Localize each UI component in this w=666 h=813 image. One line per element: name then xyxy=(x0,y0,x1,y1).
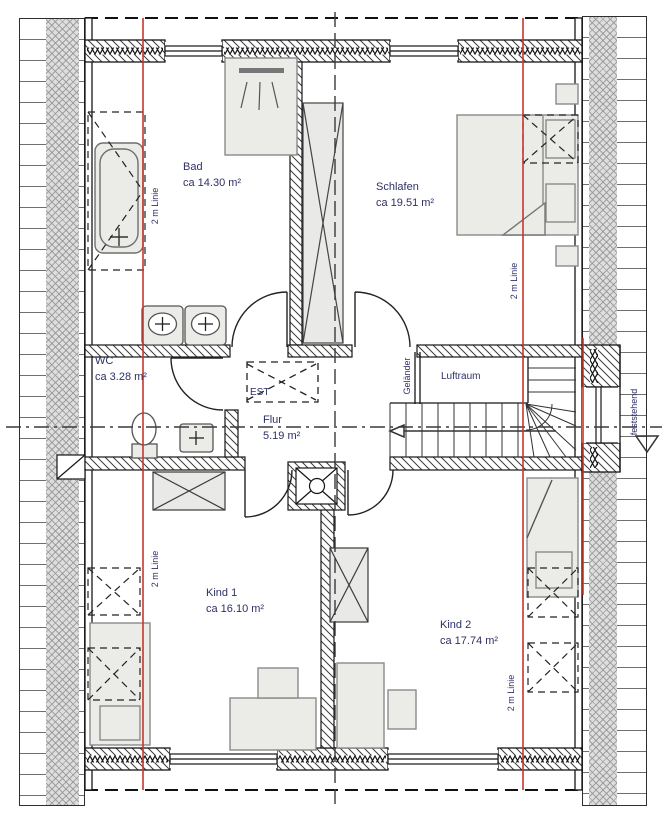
room-area: ca 19.51 m² xyxy=(376,196,434,212)
installation-shaft xyxy=(288,462,345,510)
two-m-line-label-kind1: 2 m Linie xyxy=(150,551,160,588)
window-kind2 xyxy=(388,750,498,768)
washbasin-right xyxy=(185,306,226,345)
window-kind1 xyxy=(170,750,277,768)
room-label-wc: WC ca 3.28 m² xyxy=(95,354,147,386)
bed-kind1 xyxy=(90,623,150,745)
wc-sill xyxy=(57,455,85,479)
two-m-line-label-schlafen: 2 m Linie xyxy=(509,263,519,300)
room-area: ca 14.30 m² xyxy=(183,176,241,192)
window-bad xyxy=(165,42,222,60)
staircase xyxy=(390,357,576,457)
two-m-line-label-kind2: 2 m Linie xyxy=(506,675,516,712)
door-schlafen xyxy=(355,292,410,347)
shower xyxy=(225,58,297,155)
room-name: Bad xyxy=(183,160,241,176)
door-kind1 xyxy=(245,470,292,517)
stair-railing xyxy=(415,352,420,404)
section-marker-triangle xyxy=(636,436,658,452)
wardrobe-schlafen xyxy=(303,103,343,343)
floor-plan-linework xyxy=(0,0,666,813)
door-wc xyxy=(171,358,223,410)
bed-kind2 xyxy=(527,478,578,597)
exterior-wall-bottom xyxy=(85,748,582,770)
exterior-wall-top xyxy=(85,40,582,62)
feststehend-label: feststehend xyxy=(629,389,639,436)
est-label: EST xyxy=(250,386,269,401)
washbasin-left xyxy=(142,306,183,345)
room-area: ca 3.28 m² xyxy=(95,370,147,386)
gelaender-label: Geländer xyxy=(402,357,412,394)
two-m-line-label-bad: 2 m Linie xyxy=(150,188,160,225)
window-schlafen xyxy=(390,42,458,60)
door-bad xyxy=(232,292,287,347)
wc-sink xyxy=(180,424,213,452)
room-name: Kind 1 xyxy=(206,586,264,602)
room-name: Kind 2 xyxy=(440,618,498,634)
room-area: ca 16.10 m² xyxy=(206,602,264,618)
room-area: 5.19 m² xyxy=(263,429,300,445)
luftraum-label: Luftraum xyxy=(441,370,480,385)
desk-kind2 xyxy=(337,663,416,748)
bed-schlafen xyxy=(457,115,578,235)
room-label-kind2: Kind 2 ca 17.74 m² xyxy=(440,618,498,650)
door-kind2 xyxy=(348,470,393,515)
room-label-bad: Bad ca 14.30 m² xyxy=(183,160,241,192)
bathtub xyxy=(95,143,143,253)
room-name: Schlafen xyxy=(376,180,434,196)
room-area: ca 17.74 m² xyxy=(440,634,498,650)
room-name: WC xyxy=(95,354,147,370)
toilet xyxy=(132,413,157,458)
wardrobe-kind1 xyxy=(153,472,225,510)
room-label-flur: Flur 5.19 m² xyxy=(263,413,300,445)
floor-plan: Bad ca 14.30 m² Schlafen ca 19.51 m² WC … xyxy=(0,0,666,813)
wardrobe-kind2 xyxy=(330,548,368,622)
desk-kind1 xyxy=(230,668,316,750)
room-label-schlafen: Schlafen ca 19.51 m² xyxy=(376,180,434,212)
room-name: Flur xyxy=(263,413,300,429)
room-label-kind1: Kind 1 ca 16.10 m² xyxy=(206,586,264,618)
